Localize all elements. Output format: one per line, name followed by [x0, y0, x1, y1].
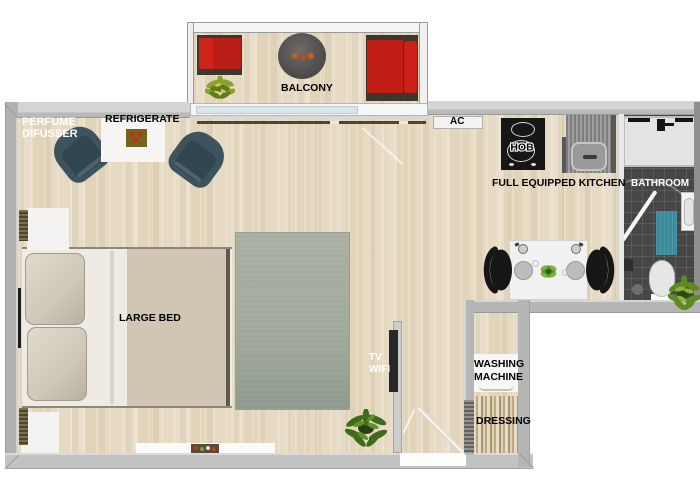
svg-text:HOB: HOB	[510, 142, 534, 154]
